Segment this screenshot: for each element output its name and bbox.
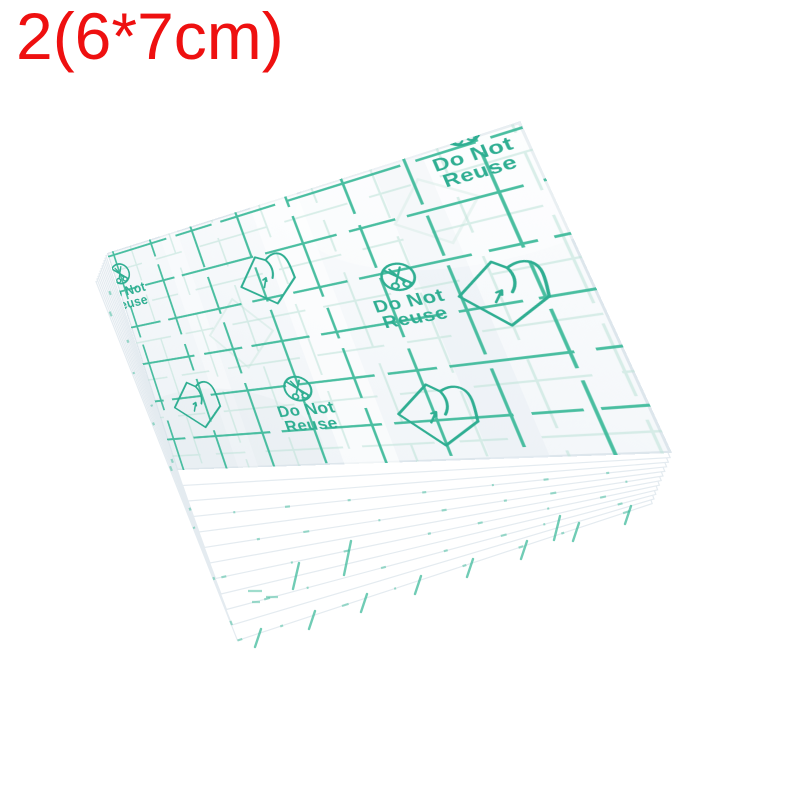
film-stack: Do Not Reuse Do Not Reuse <box>0 0 800 800</box>
do-not-reuse-text: Reuse <box>283 416 341 436</box>
product-photo: 2(6*7cm) <box>0 0 800 800</box>
